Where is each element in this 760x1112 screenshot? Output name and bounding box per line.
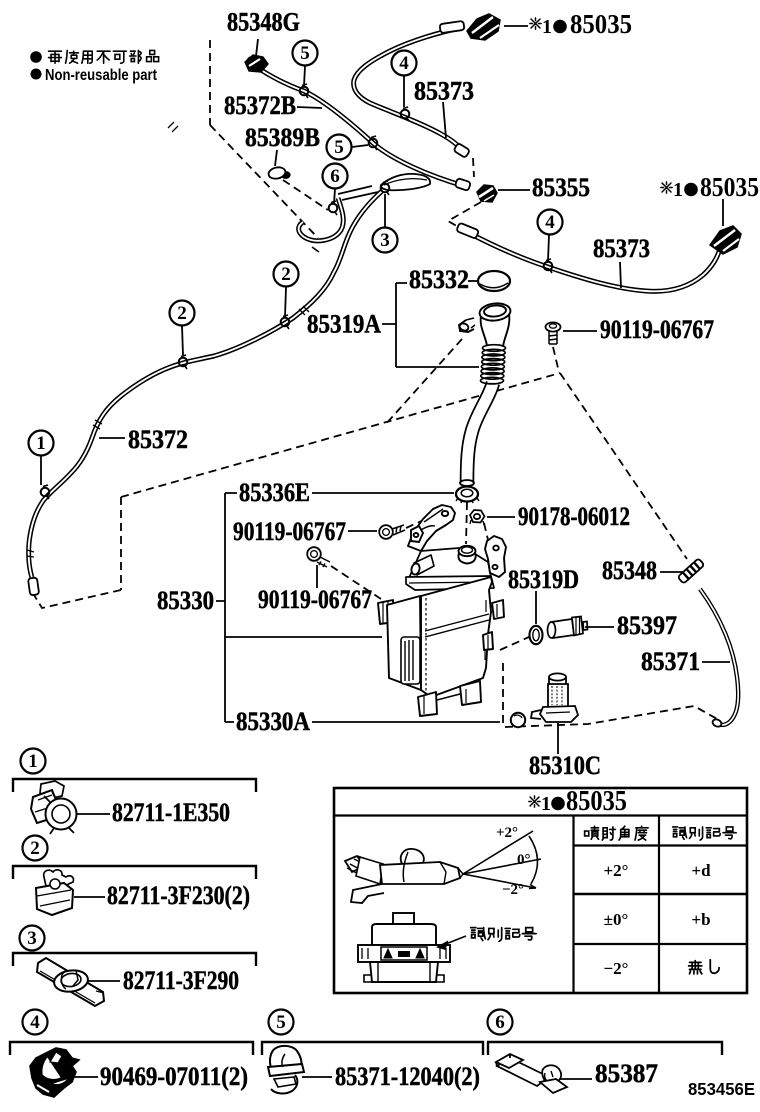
svg-text:853456E: 853456E (688, 1079, 755, 1099)
svg-text:5: 5 (334, 137, 344, 158)
svg-text:85035: 85035 (700, 172, 759, 202)
svg-text:5: 5 (276, 1012, 286, 1033)
svg-text:3: 3 (380, 230, 390, 251)
svg-text:90178-06012: 90178-06012 (518, 502, 630, 531)
svg-text:85319D: 85319D (508, 565, 579, 594)
svg-text:6: 6 (330, 166, 340, 187)
svg-text:5: 5 (300, 43, 310, 64)
svg-text:85035: 85035 (570, 9, 632, 39)
svg-text:85372: 85372 (128, 425, 188, 454)
svg-text:85373: 85373 (593, 234, 650, 263)
svg-text:85035: 85035 (566, 786, 627, 817)
svg-text:85330A: 85330A (236, 707, 310, 736)
svg-text:2: 2 (30, 838, 40, 859)
svg-text:6: 6 (495, 1012, 505, 1033)
svg-text:85371-12040(2): 85371-12040(2) (335, 1062, 480, 1091)
svg-text:−2°: −2° (502, 882, 524, 898)
svg-text:4: 4 (399, 53, 409, 74)
svg-text:1: 1 (542, 16, 552, 38)
svg-text:4: 4 (30, 1012, 40, 1033)
svg-text:85389B: 85389B (245, 123, 320, 152)
svg-text:85348G: 85348G (227, 8, 300, 37)
svg-text:1: 1 (36, 433, 46, 454)
svg-text:+b: +b (691, 910, 710, 929)
svg-text:90119-06767: 90119-06767 (600, 315, 714, 344)
svg-text:0°: 0° (517, 852, 531, 868)
svg-text:1: 1 (541, 793, 551, 815)
svg-text:82711-3F290: 82711-3F290 (123, 966, 239, 995)
svg-text:90119-06767: 90119-06767 (258, 585, 372, 614)
svg-text:−2°: −2° (604, 959, 629, 978)
svg-text:85310C: 85310C (529, 751, 601, 780)
svg-text:Non-reusable part: Non-reusable part (45, 67, 158, 84)
svg-text:85355: 85355 (532, 173, 590, 202)
svg-text:90469-07011(2): 90469-07011(2) (100, 1062, 248, 1091)
svg-text:85397: 85397 (617, 611, 677, 640)
svg-text:2: 2 (281, 264, 291, 285)
svg-text:85332: 85332 (409, 265, 469, 294)
svg-text:85371: 85371 (641, 647, 700, 676)
svg-text:±0°: ±0° (604, 910, 629, 929)
svg-text:85372B: 85372B (224, 91, 296, 120)
svg-text:+2°: +2° (496, 825, 518, 841)
svg-text:+d: +d (691, 861, 711, 880)
svg-text:1: 1 (28, 751, 38, 772)
svg-text:85387: 85387 (595, 1059, 658, 1088)
svg-text:85336E: 85336E (239, 478, 310, 507)
svg-text:85330: 85330 (157, 586, 214, 615)
svg-text:3: 3 (27, 928, 37, 949)
svg-text:85373: 85373 (414, 77, 474, 106)
svg-text:85319A: 85319A (307, 310, 381, 339)
svg-text:1: 1 (673, 179, 683, 201)
svg-text:2: 2 (177, 303, 187, 324)
svg-text:85348: 85348 (602, 556, 657, 585)
svg-text:82711-1E350: 82711-1E350 (112, 798, 230, 827)
svg-text:4: 4 (545, 212, 555, 233)
svg-text:82711-3F230(2): 82711-3F230(2) (107, 881, 250, 910)
svg-text:+2°: +2° (604, 861, 629, 880)
svg-text:90119-06767: 90119-06767 (233, 517, 346, 546)
